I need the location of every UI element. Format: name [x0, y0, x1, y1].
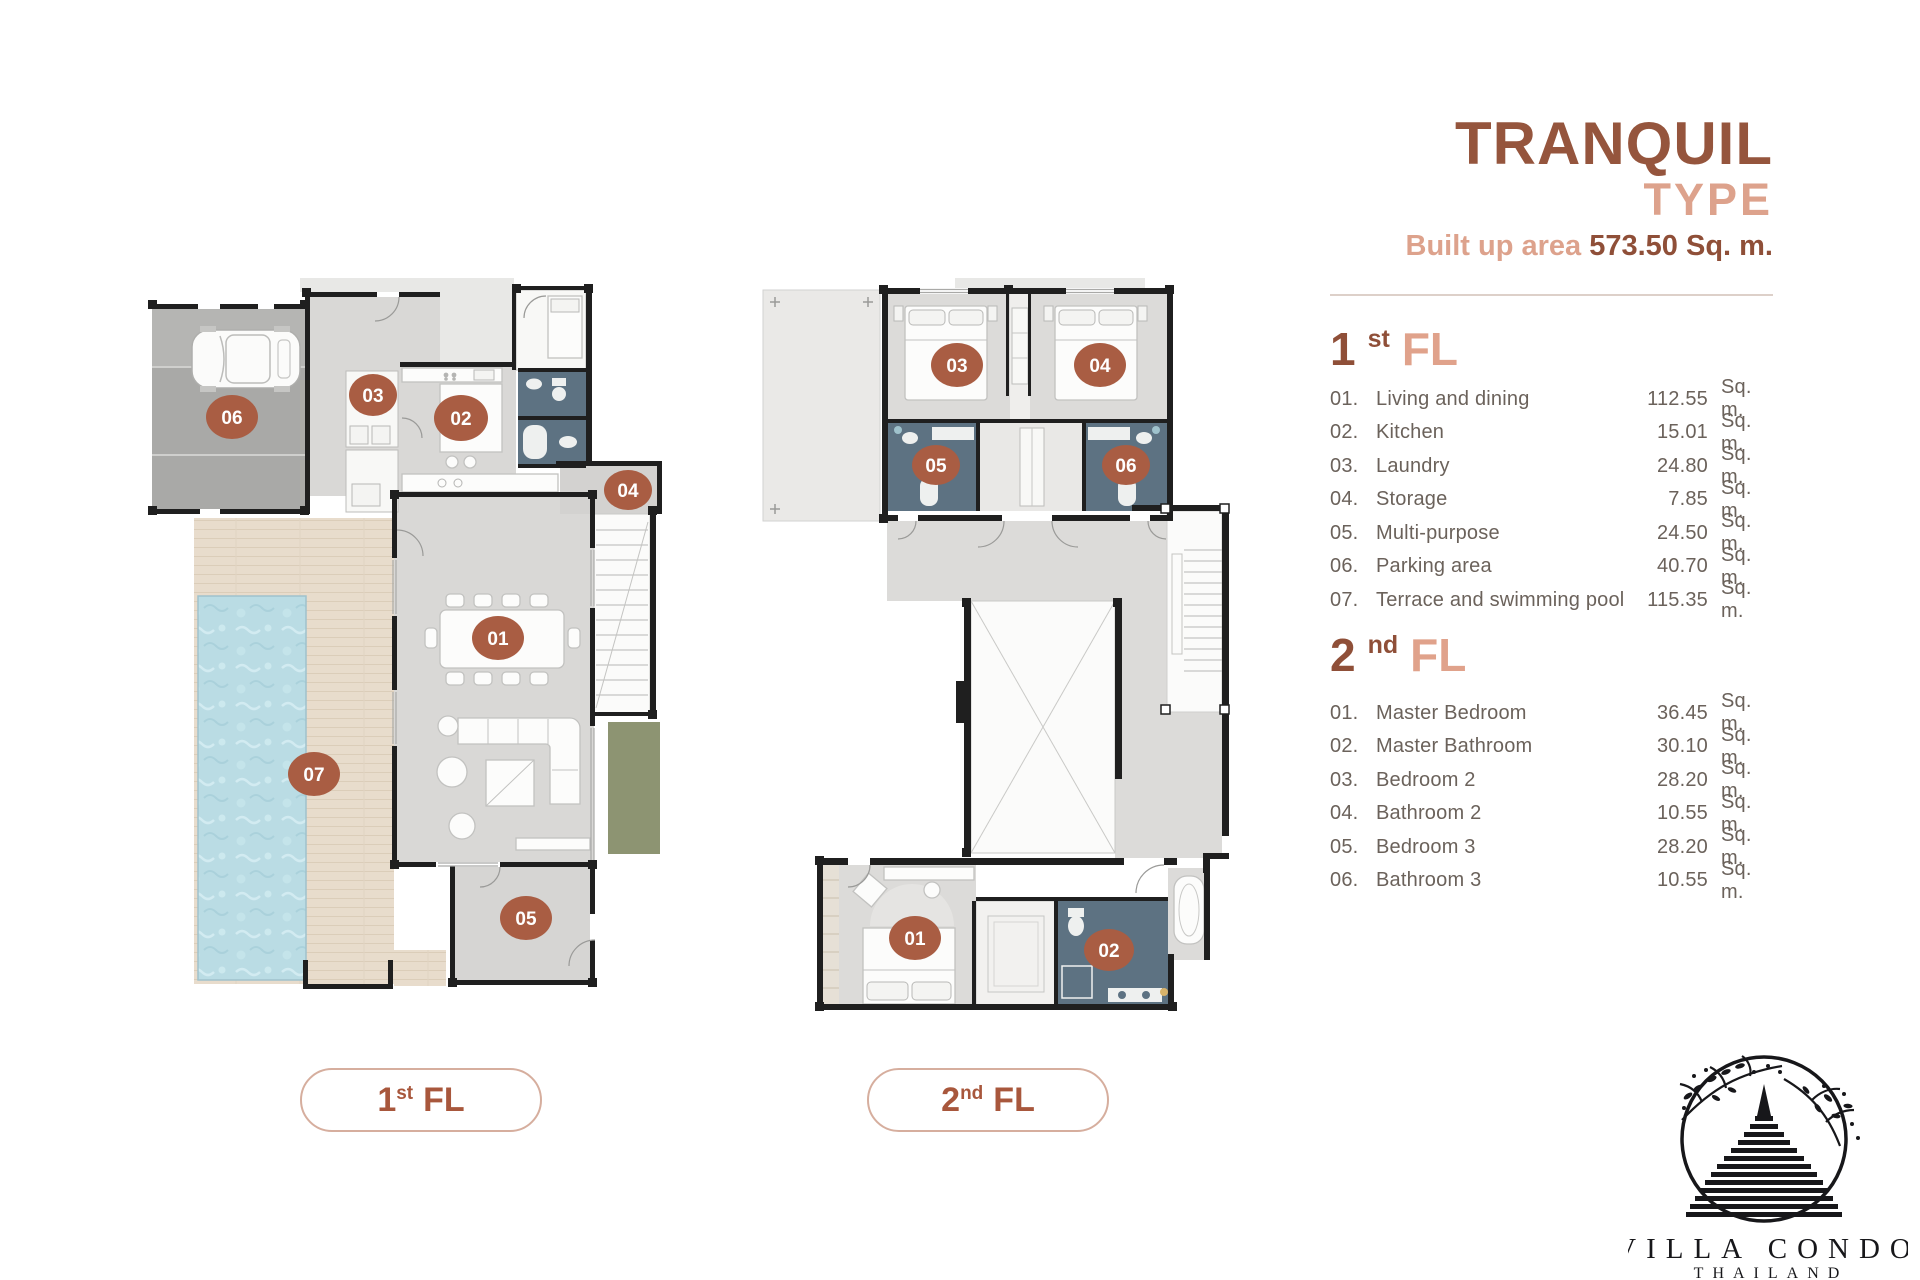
- badge-multipurpose: 05: [500, 896, 552, 940]
- floor2-heading: 2ndFL: [1330, 632, 1466, 678]
- badge-kitchen: 02: [434, 395, 488, 441]
- floor2-pill[interactable]: 2ndFL: [867, 1068, 1109, 1132]
- svg-text:01: 01: [487, 629, 509, 650]
- floor1-heading: 1stFL: [1330, 326, 1458, 372]
- svg-text:03: 03: [362, 386, 383, 407]
- svg-text:02: 02: [1098, 941, 1119, 962]
- badge-storage: 04: [604, 470, 652, 510]
- room-row: 02.Kitchen15.01Sq. m.: [1330, 410, 1773, 444]
- room-row: 05.Bedroom 328.20Sq. m.: [1330, 824, 1773, 858]
- floor1-room-list: 01.Living and dining112.55Sq. m. 02.Kitc…: [1330, 376, 1773, 611]
- floor1-pill[interactable]: 1stFL: [300, 1068, 542, 1132]
- logo-emblem: [1680, 1056, 1860, 1221]
- room-row: 03.Laundry24.80Sq. m.: [1330, 443, 1773, 477]
- swimming-pool: [198, 596, 306, 980]
- room-row: 03.Bedroom 228.20Sq. m.: [1330, 757, 1773, 791]
- room-row: 05.Multi-purpose24.50Sq. m.: [1330, 510, 1773, 544]
- logo-brand-text: VILLA CONDO: [1628, 1233, 1908, 1265]
- header-divider: [1330, 294, 1773, 296]
- pill1-sup: st: [396, 1083, 413, 1105]
- staircase-2nd: [1167, 511, 1222, 712]
- page-subtitle: TYPE: [1330, 177, 1773, 222]
- master-suite: [823, 865, 1210, 1005]
- badge-parking: 06: [206, 395, 258, 439]
- svg-text:06: 06: [1115, 456, 1136, 477]
- badge-master-bedroom: 01: [889, 916, 941, 960]
- svg-text:05: 05: [925, 456, 947, 477]
- badge-bedroom2: 03: [931, 343, 983, 387]
- built-up-label: Built up area: [1406, 230, 1582, 262]
- garden-patch: [608, 722, 660, 854]
- double-height-void: [971, 601, 1115, 853]
- badge-terrace: 07: [288, 752, 340, 796]
- pill2-sup: nd: [960, 1083, 983, 1105]
- stupa-icon: [1686, 1084, 1842, 1217]
- badge-bathroom2: 05: [912, 445, 960, 485]
- svg-text:03: 03: [946, 356, 967, 377]
- svg-text:01: 01: [904, 929, 926, 950]
- svg-text:02: 02: [450, 409, 471, 430]
- page-title: TRANQUIL: [1330, 112, 1773, 175]
- floorplan-1st-floor: 06 03 02 04 01 07 05: [140, 278, 680, 1048]
- room-row: 04.Bathroom 210.55Sq. m.: [1330, 791, 1773, 825]
- room-row: 07.Terrace and swimming pool115.35Sq. m.: [1330, 577, 1773, 611]
- pill1-num: 1: [377, 1081, 396, 1120]
- svg-text:04: 04: [617, 481, 639, 502]
- villa-condo-logo: VILLA CONDO THAILAND: [1628, 1046, 1908, 1280]
- room-row: 02.Master Bathroom30.10Sq. m.: [1330, 724, 1773, 758]
- pill2-word: FL: [993, 1081, 1035, 1120]
- staircase: [594, 514, 650, 714]
- built-up-area: Built up area 573.50 Sq. m.: [1330, 230, 1773, 263]
- svg-text:07: 07: [303, 765, 324, 786]
- pill1-word: FL: [423, 1081, 465, 1120]
- room-row: 06.Parking area40.70Sq. m.: [1330, 544, 1773, 578]
- car-icon: [192, 326, 300, 392]
- built-up-value: 573.50 Sq. m.: [1589, 230, 1773, 262]
- room-row: 06.Bathroom 310.55Sq. m.: [1330, 858, 1773, 892]
- room-row: 04.Storage7.85Sq. m.: [1330, 477, 1773, 511]
- room-row: 01.Master Bedroom36.45Sq. m.: [1330, 690, 1773, 724]
- svg-text:05: 05: [515, 909, 537, 930]
- floorplan-2nd-floor: 03 04 05 06 01 02: [720, 278, 1280, 1048]
- badge-master-bathroom: 02: [1084, 929, 1134, 971]
- room-row: 01.Living and dining112.55Sq. m.: [1330, 376, 1773, 410]
- header: TRANQUIL TYPE Built up area 573.50 Sq. m…: [1330, 112, 1773, 263]
- svg-text:04: 04: [1089, 356, 1111, 377]
- brochure-page: 06 03 02 04 01 07 05: [0, 0, 1920, 1280]
- svg-text:06: 06: [221, 408, 242, 429]
- badge-laundry: 03: [349, 374, 397, 416]
- floor2-room-list: 01.Master Bedroom36.45Sq. m. 02.Master B…: [1330, 690, 1773, 891]
- logo-country-text: THAILAND: [1694, 1265, 1849, 1280]
- badge-bathroom3: 06: [1102, 445, 1150, 485]
- pill2-num: 2: [941, 1081, 960, 1120]
- maid-room: [516, 290, 586, 370]
- badge-living: 01: [472, 616, 524, 660]
- badge-bedroom3: 04: [1074, 343, 1126, 387]
